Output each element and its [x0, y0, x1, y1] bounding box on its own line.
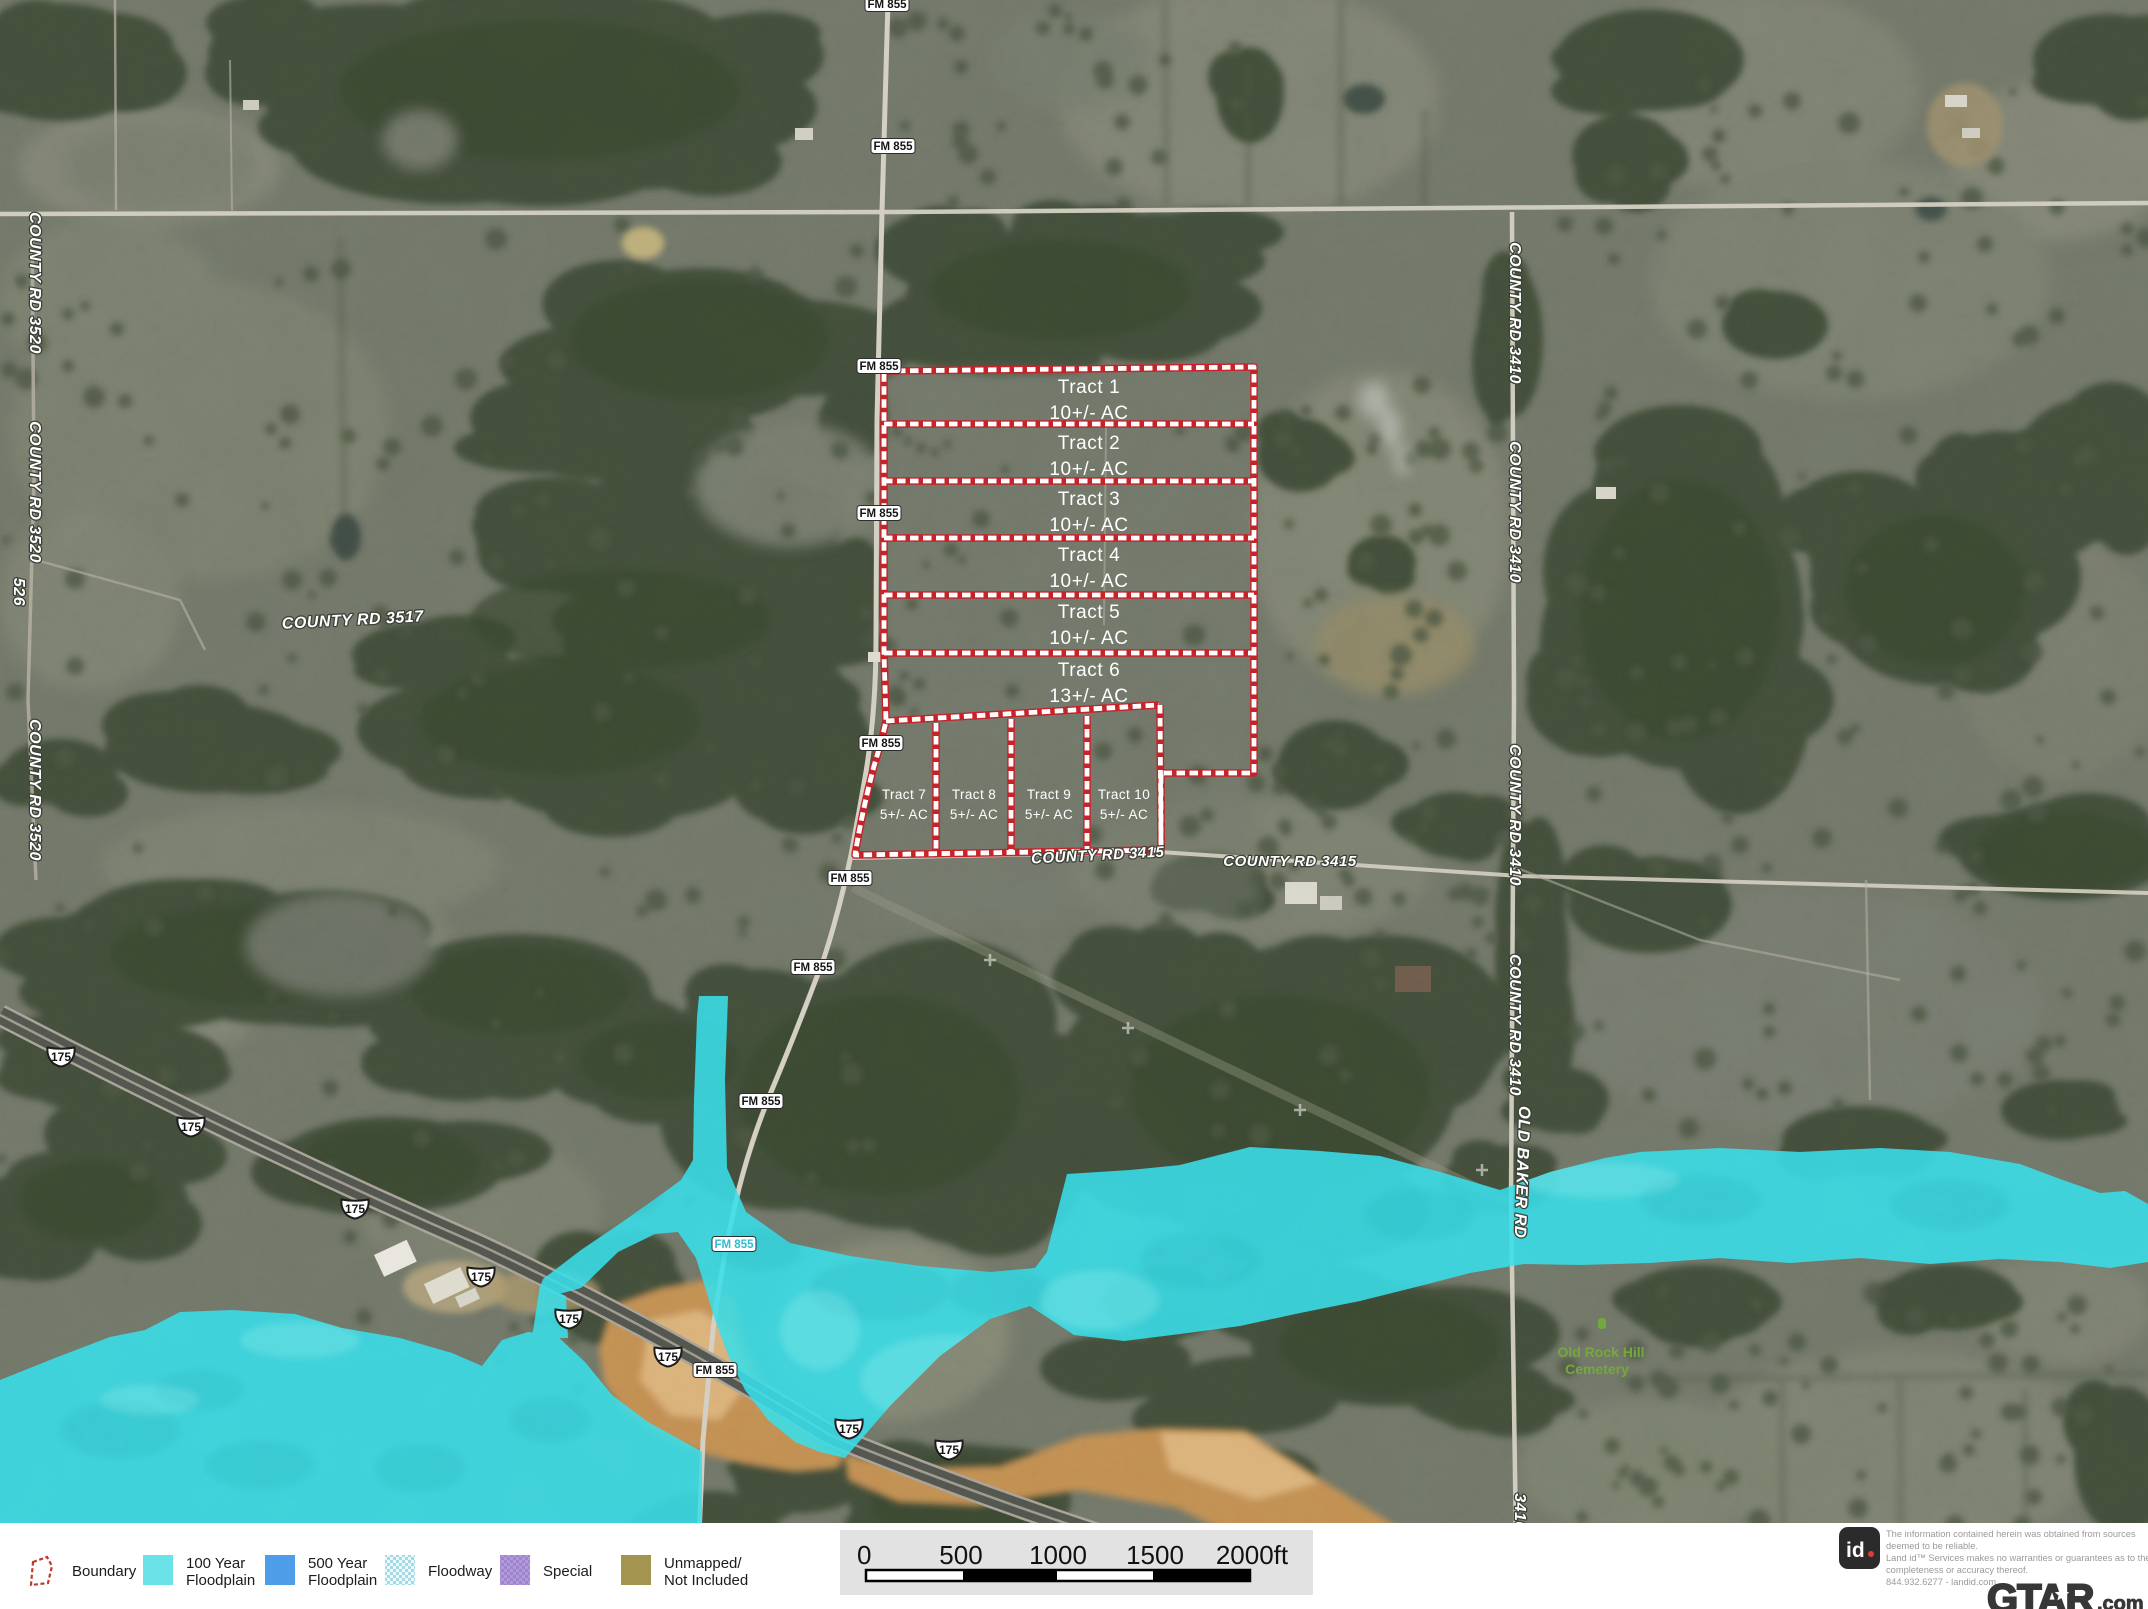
svg-text:2000ft: 2000ft — [1216, 1540, 1289, 1570]
svg-text:844.932.6277 - landid.com: 844.932.6277 - landid.com — [1886, 1577, 1996, 1587]
svg-text:GTAR: GTAR — [1987, 1577, 2094, 1609]
svg-text:100 Year: 100 Year — [186, 1555, 245, 1572]
svg-text:id: id — [1846, 1539, 1865, 1562]
svg-text:1000: 1000 — [1029, 1540, 1087, 1570]
svg-text:Land id™ Services makes no war: Land id™ Services makes no warranties or… — [1886, 1553, 2148, 1563]
svg-text:completeness or accuracy there: completeness or accuracy thereof. — [1886, 1565, 2028, 1575]
svg-text:0: 0 — [857, 1540, 871, 1570]
svg-text:Floodplain: Floodplain — [308, 1572, 377, 1589]
svg-text:deemed to be reliable.: deemed to be reliable. — [1886, 1541, 1978, 1551]
svg-text:The information contained here: The information contained herein was obt… — [1886, 1529, 2136, 1539]
svg-text:Not Included: Not Included — [664, 1572, 748, 1589]
svg-text:Unmapped/: Unmapped/ — [664, 1555, 742, 1572]
svg-text:Floodway: Floodway — [428, 1563, 493, 1580]
svg-text:Special: Special — [543, 1563, 592, 1580]
svg-text:Floodplain: Floodplain — [186, 1572, 255, 1589]
svg-text:1500: 1500 — [1126, 1540, 1184, 1570]
svg-text:.com: .com — [2097, 1593, 2144, 1609]
svg-text:Boundary: Boundary — [72, 1563, 137, 1580]
svg-text:500: 500 — [939, 1540, 982, 1570]
svg-text:500 Year: 500 Year — [308, 1555, 367, 1572]
